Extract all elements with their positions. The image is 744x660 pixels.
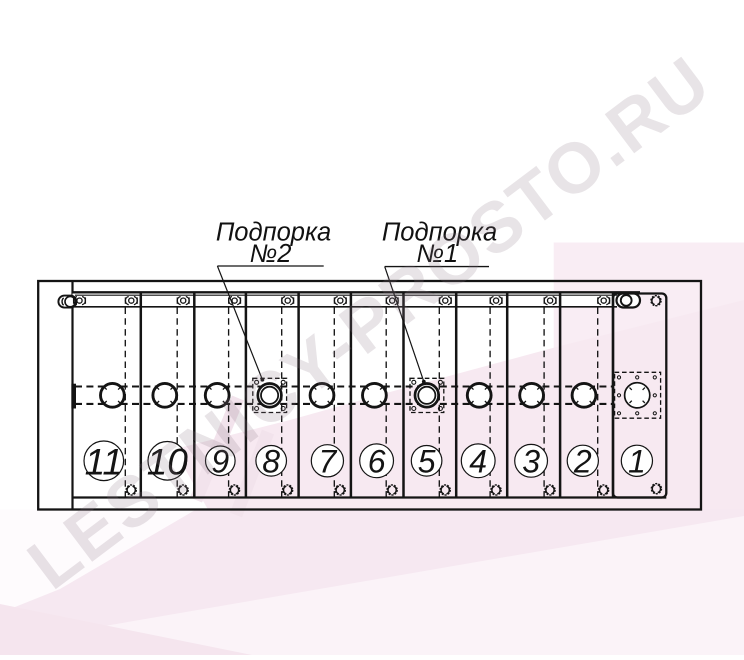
svg-text:7: 7 <box>319 444 338 480</box>
svg-text:2: 2 <box>573 444 592 480</box>
svg-text:5: 5 <box>418 444 436 480</box>
svg-text:4: 4 <box>469 444 487 480</box>
svg-text:3: 3 <box>522 444 540 480</box>
svg-text:№2: №2 <box>250 240 292 268</box>
svg-text:6: 6 <box>368 444 386 480</box>
svg-text:1: 1 <box>628 444 646 480</box>
